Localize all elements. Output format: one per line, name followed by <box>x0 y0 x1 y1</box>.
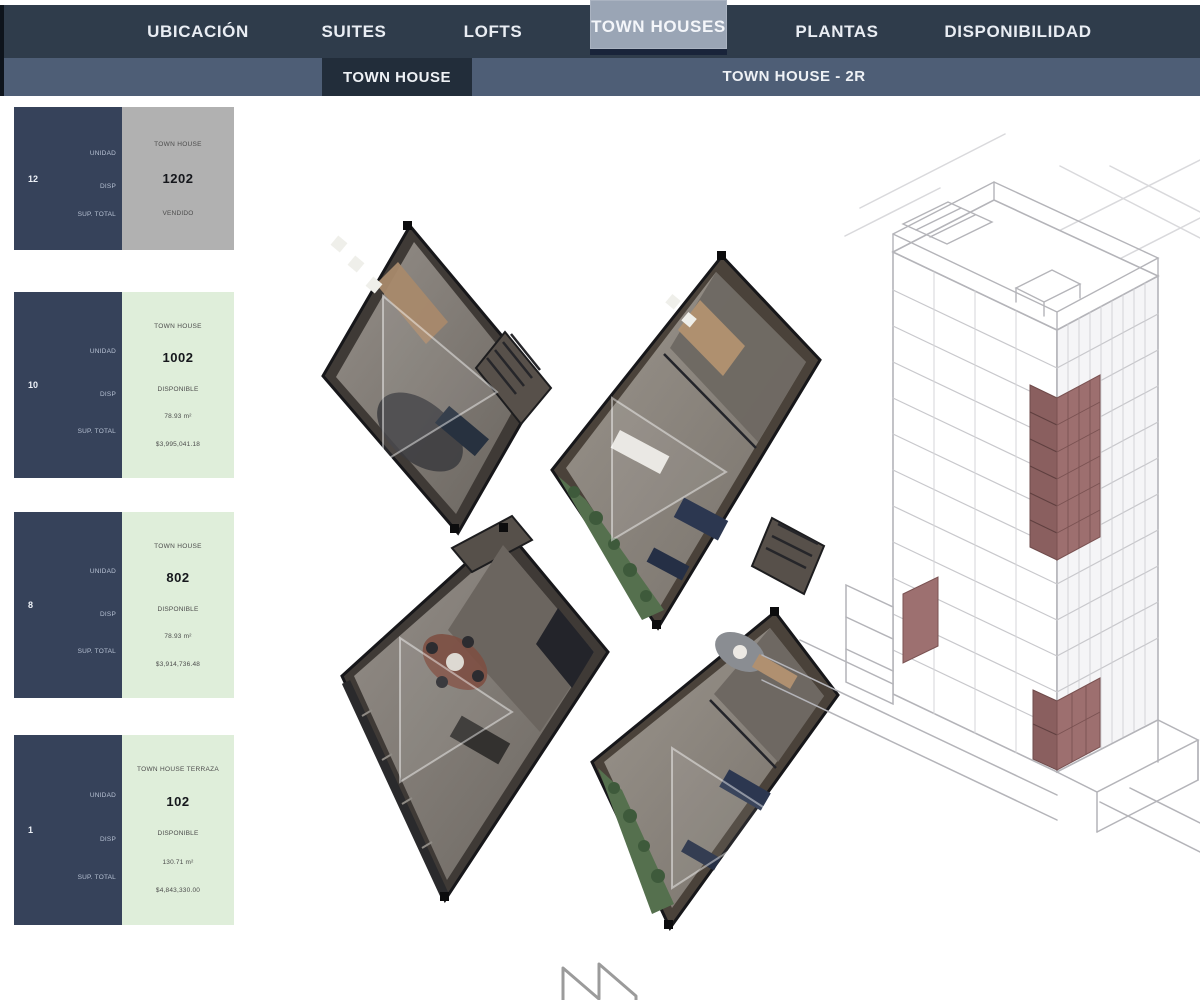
label-unidad: UNIDAD <box>90 348 116 355</box>
unit-status: DISPONIBLE <box>157 830 198 837</box>
unit-card-1202-meta: 12 UNIDAD DISP SUP. TOTAL <box>14 107 122 250</box>
unit-card-802[interactable]: 8 UNIDAD DISP SUP. TOTAL TOWN HOUSE 802 … <box>14 512 234 698</box>
unit-card-1002-values: TOWN HOUSE 1002 DISPONIBLE 78.93 m² $3,9… <box>122 292 234 478</box>
unit-card-1002[interactable]: 10 UNIDAD DISP SUP. TOTAL TOWN HOUSE 100… <box>14 292 234 478</box>
unit-card-802-meta: 8 UNIDAD DISP SUP. TOTAL <box>14 512 122 698</box>
unit-area: 130.71 m² <box>162 859 193 866</box>
unit-number: 102 <box>166 794 189 809</box>
floorplan-townhouse-upper <box>323 221 551 533</box>
label-unidad: UNIDAD <box>90 792 116 799</box>
unit-card-102[interactable]: 1 UNIDAD DISP SUP. TOTAL TOWN HOUSE TERR… <box>14 735 234 925</box>
label-disp: DISP <box>100 183 116 190</box>
unit-number: 1002 <box>163 350 194 365</box>
label-unidad: UNIDAD <box>90 150 116 157</box>
unit-type: TOWN HOUSE <box>154 323 202 330</box>
floor-number: 12 <box>28 174 38 184</box>
floor-number: 8 <box>28 600 33 610</box>
floorplan-townhouse-terrace-lower <box>592 607 838 929</box>
unit-area: 78.93 m² <box>164 413 191 420</box>
unit-card-1202[interactable]: 12 UNIDAD DISP SUP. TOTAL TOWN HOUSE 120… <box>14 107 234 250</box>
label-sup-total: SUP. TOTAL <box>78 428 116 435</box>
unit-card-1202-values: TOWN HOUSE 1202 VENDIDO <box>122 107 234 250</box>
floor-number: 1 <box>28 825 33 835</box>
label-disp: DISP <box>100 836 116 843</box>
unit-area: 78.93 m² <box>164 633 191 640</box>
logo-mark <box>563 964 636 1000</box>
label-disp: DISP <box>100 611 116 618</box>
label-sup-total: SUP. TOTAL <box>78 874 116 881</box>
building-wireframe <box>762 134 1200 852</box>
floor-number: 10 <box>28 380 38 390</box>
unit-type: TOWN HOUSE <box>154 543 202 550</box>
unit-price: $4,843,330.00 <box>156 887 200 894</box>
unit-status: VENDIDO <box>162 210 193 217</box>
unit-card-102-meta: 1 UNIDAD DISP SUP. TOTAL <box>14 735 122 925</box>
unit-price: $3,914,736.48 <box>156 661 200 668</box>
unit-status: DISPONIBLE <box>157 606 198 613</box>
unit-card-102-values: TOWN HOUSE TERRAZA 102 DISPONIBLE 130.71… <box>122 735 234 925</box>
unit-card-1002-meta: 10 UNIDAD DISP SUP. TOTAL <box>14 292 122 478</box>
unit-price: $3,995,041.18 <box>156 441 200 448</box>
floorplan-townhouse-terrace-upper <box>552 251 824 629</box>
unit-card-802-values: TOWN HOUSE 802 DISPONIBLE 78.93 m² $3,91… <box>122 512 234 698</box>
unit-type: TOWN HOUSE <box>154 141 202 148</box>
unit-number: 1202 <box>163 171 194 186</box>
label-disp: DISP <box>100 391 116 398</box>
label-unidad: UNIDAD <box>90 568 116 575</box>
unit-number: 802 <box>166 570 189 585</box>
label-sup-total: SUP. TOTAL <box>78 211 116 218</box>
label-sup-total: SUP. TOTAL <box>78 648 116 655</box>
unit-type: TOWN HOUSE TERRAZA <box>137 766 219 773</box>
unit-status: DISPONIBLE <box>157 386 198 393</box>
floorplan-townhouse-lower <box>342 516 608 901</box>
